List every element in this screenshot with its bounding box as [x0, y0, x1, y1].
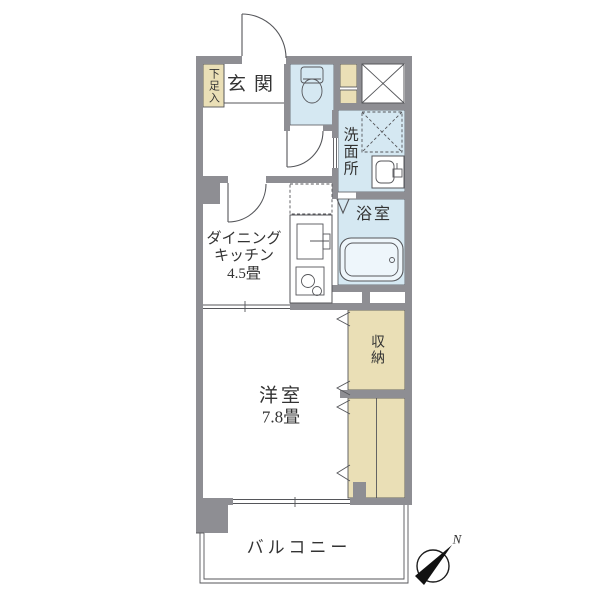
dining-kitchen-label-line2: キッチン: [206, 248, 281, 265]
wall-segment: [332, 285, 412, 292]
toilet-door-swing-icon: [287, 131, 323, 167]
sliding-opening-icon: [332, 138, 338, 168]
balcony-window-icon: [233, 497, 350, 507]
wall-segment: [284, 64, 290, 131]
wall-segment: [405, 56, 412, 505]
sliding-opening-icon: [203, 301, 290, 312]
floor-plan-canvas: [0, 0, 600, 600]
wall-segment: [286, 56, 412, 64]
wall-segment: [332, 110, 338, 138]
wall-segment: [353, 482, 366, 498]
entrance-door-swing-icon: [242, 14, 286, 58]
compass-north-label: N: [453, 533, 462, 548]
vanity-sink-icon: [372, 156, 404, 188]
bathroom-label: 浴室: [356, 206, 392, 224]
storage-label: 収納: [368, 334, 384, 366]
shelf-upper-box: [340, 64, 357, 87]
western-room-name: 洋室: [259, 385, 303, 407]
dk-door-swing-icon: [228, 183, 266, 222]
entrance-label: 玄関: [227, 74, 281, 96]
bathtub-icon: [340, 238, 403, 281]
wall-segment: [340, 390, 412, 398]
balcony-wall-block: [196, 498, 228, 533]
wall-segment: [334, 64, 340, 107]
floor-plan: 玄関 下足入 洗面所 浴室 ダイニング キッチン 4.5畳 洋室 7.8畳 収納…: [0, 0, 600, 600]
wall-segment: [266, 176, 338, 183]
western-room-area: 7.8畳: [259, 407, 303, 427]
shoe-cabinet-label: 下足入: [207, 68, 220, 104]
wall-segment: [357, 64, 362, 103]
wall-segment: [332, 168, 338, 199]
wall-segment: [196, 176, 228, 183]
wall-segment: [290, 303, 412, 310]
wall-segment: [350, 498, 412, 505]
wall-segment: [196, 56, 203, 505]
dining-kitchen-area: 4.5畳: [206, 266, 281, 283]
dining-kitchen-label-line1: ダイニング: [206, 231, 281, 248]
refrigerator-space-icon: [290, 184, 332, 214]
wall-segment: [334, 103, 412, 110]
toilet-room-floor: [290, 64, 334, 125]
compass-icon: [415, 545, 452, 585]
dining-kitchen-label: ダイニング キッチン 4.5畳: [206, 231, 281, 283]
balcony-label: バルコニー: [247, 538, 352, 558]
wall-segment: [356, 192, 412, 199]
western-room-label: 洋室 7.8畳: [259, 385, 303, 426]
pillar-block: [203, 183, 220, 204]
washroom-label: 洗面所: [340, 127, 357, 178]
wall-segment: [362, 292, 370, 304]
pipe-space-cross-icon: [362, 64, 404, 103]
